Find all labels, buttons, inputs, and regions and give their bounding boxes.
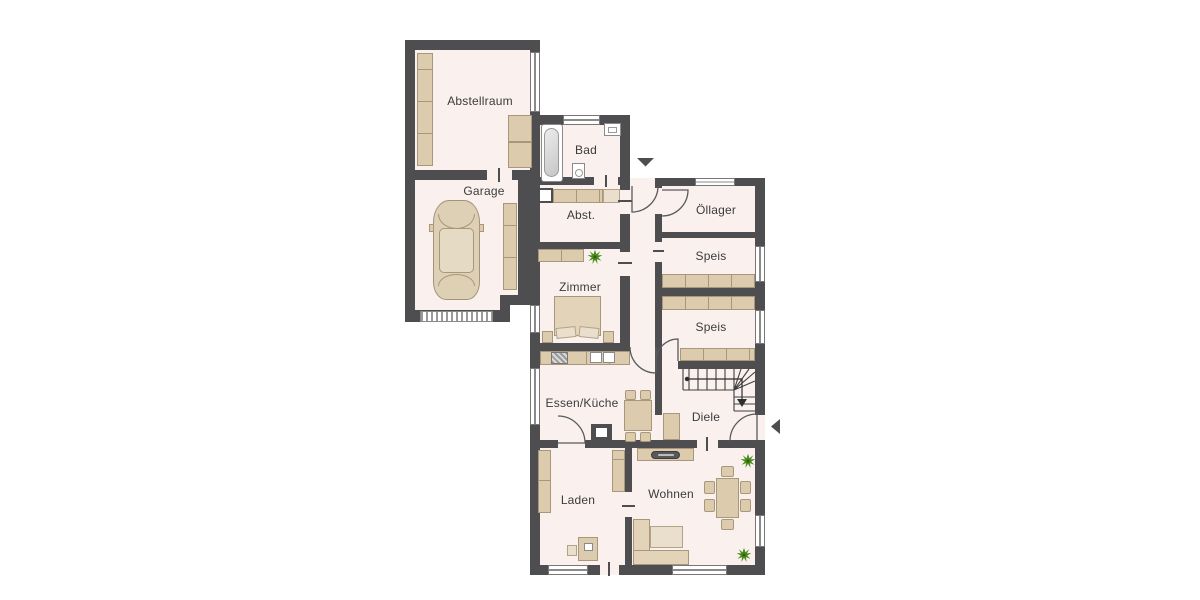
garage-door bbox=[420, 311, 493, 322]
window bbox=[755, 515, 765, 547]
chair bbox=[640, 432, 651, 442]
car-rear-window bbox=[438, 274, 475, 286]
chair bbox=[704, 499, 715, 512]
wall bbox=[620, 214, 630, 252]
wall bbox=[625, 517, 632, 565]
plant-icon bbox=[736, 547, 752, 563]
wall bbox=[500, 305, 510, 322]
kitchen-sink bbox=[590, 352, 602, 363]
wall bbox=[655, 214, 662, 242]
wall bbox=[518, 170, 530, 295]
wall bbox=[415, 170, 487, 180]
sofa-cushion bbox=[650, 526, 683, 548]
wall bbox=[678, 361, 765, 369]
shop-shelf bbox=[612, 450, 625, 492]
door-tick bbox=[498, 168, 500, 182]
wall bbox=[620, 276, 630, 351]
chair bbox=[704, 481, 715, 494]
window bbox=[530, 368, 540, 425]
cabinet bbox=[508, 142, 532, 168]
wall bbox=[718, 440, 765, 448]
room-label-diele: Diele bbox=[692, 410, 720, 424]
plant-icon bbox=[587, 249, 603, 265]
door-tick bbox=[706, 437, 708, 451]
room-label-zimmer: Zimmer bbox=[559, 280, 601, 294]
chimney-flue bbox=[596, 428, 607, 437]
garage-cabinet bbox=[503, 203, 517, 290]
wall bbox=[405, 40, 540, 50]
chimney bbox=[591, 424, 612, 441]
chair bbox=[640, 390, 651, 400]
pillow bbox=[555, 326, 576, 339]
pantry-shelf bbox=[662, 274, 755, 288]
wardrobe bbox=[663, 413, 680, 440]
chair bbox=[740, 481, 751, 494]
shop-shelf bbox=[538, 450, 551, 513]
counter bbox=[553, 189, 603, 203]
tv-screen bbox=[658, 454, 674, 456]
car bbox=[433, 200, 480, 300]
bathroom-sink bbox=[604, 123, 621, 136]
bathtub-basin bbox=[544, 128, 559, 177]
room-label-bad: Bad bbox=[575, 143, 597, 157]
window bbox=[530, 52, 540, 112]
wall bbox=[655, 178, 662, 188]
window bbox=[755, 310, 765, 344]
pillow bbox=[578, 326, 599, 339]
wall bbox=[620, 185, 630, 190]
sink-basin bbox=[608, 127, 617, 133]
tv bbox=[651, 451, 680, 459]
dining-table bbox=[624, 400, 652, 431]
car-roof bbox=[439, 228, 474, 273]
car-mirror bbox=[429, 224, 434, 232]
room-label-abst: Abst. bbox=[567, 208, 595, 222]
washing-machine bbox=[538, 188, 553, 203]
wall bbox=[662, 288, 755, 296]
room-label-wohnen: Wohnen bbox=[648, 487, 694, 501]
room-label-speis2: Speis bbox=[695, 320, 726, 334]
desk-item bbox=[584, 543, 593, 551]
door-tick bbox=[653, 250, 664, 252]
sofa bbox=[633, 550, 689, 565]
wall bbox=[618, 177, 630, 185]
wall bbox=[655, 361, 662, 415]
toilet-bowl bbox=[575, 169, 583, 177]
window bbox=[530, 305, 540, 333]
window bbox=[672, 565, 727, 575]
cabinet bbox=[508, 115, 532, 142]
main-entrance-arrow-icon bbox=[771, 419, 780, 434]
door-tick bbox=[618, 200, 632, 202]
wall bbox=[655, 262, 662, 361]
car-mirror bbox=[479, 224, 484, 232]
room-label-garage: Garage bbox=[463, 184, 504, 198]
plant-icon bbox=[740, 453, 756, 469]
shelf bbox=[417, 53, 433, 166]
room-label-laden: Laden bbox=[561, 493, 595, 507]
door-tick bbox=[608, 562, 610, 576]
kitchen-sink bbox=[603, 352, 615, 363]
rear-entrance-arrow-icon bbox=[637, 158, 654, 167]
pantry-shelf bbox=[680, 348, 755, 361]
room-label-abstellraum: Abstellraum bbox=[447, 94, 513, 108]
dining-table bbox=[716, 478, 739, 518]
door-tick bbox=[622, 505, 635, 507]
toilet bbox=[572, 163, 585, 179]
wall bbox=[625, 448, 632, 492]
window bbox=[548, 565, 588, 575]
window bbox=[695, 178, 735, 186]
pantry-shelf bbox=[662, 296, 755, 310]
wall bbox=[755, 178, 765, 415]
chair bbox=[625, 390, 636, 400]
bathtub bbox=[541, 124, 563, 182]
door-tick bbox=[618, 262, 632, 264]
wall bbox=[540, 242, 620, 249]
room-label-speis1: Speis bbox=[695, 249, 726, 263]
nightstand bbox=[542, 331, 553, 343]
wall bbox=[662, 232, 755, 238]
wall bbox=[540, 440, 558, 448]
shelf bbox=[538, 249, 584, 262]
chair bbox=[721, 466, 734, 477]
chair bbox=[721, 519, 734, 530]
chair bbox=[740, 499, 751, 512]
wall bbox=[620, 115, 630, 185]
stove bbox=[551, 352, 568, 364]
room-label-oellager: Öllager bbox=[696, 203, 736, 217]
chair bbox=[625, 432, 636, 442]
floor-plan: Abstellraum Garage Bad Abst. Öllager Spe… bbox=[0, 0, 1200, 600]
wall bbox=[755, 440, 765, 575]
wall bbox=[540, 343, 630, 351]
wall bbox=[500, 295, 530, 305]
window bbox=[563, 115, 600, 125]
desk-chair bbox=[567, 545, 577, 556]
window bbox=[755, 246, 765, 282]
wall bbox=[405, 40, 415, 322]
door-tick bbox=[605, 175, 607, 187]
room-label-essen-kueche: Essen/Küche bbox=[546, 396, 619, 410]
car-windshield bbox=[438, 214, 475, 229]
nightstand bbox=[603, 331, 614, 343]
